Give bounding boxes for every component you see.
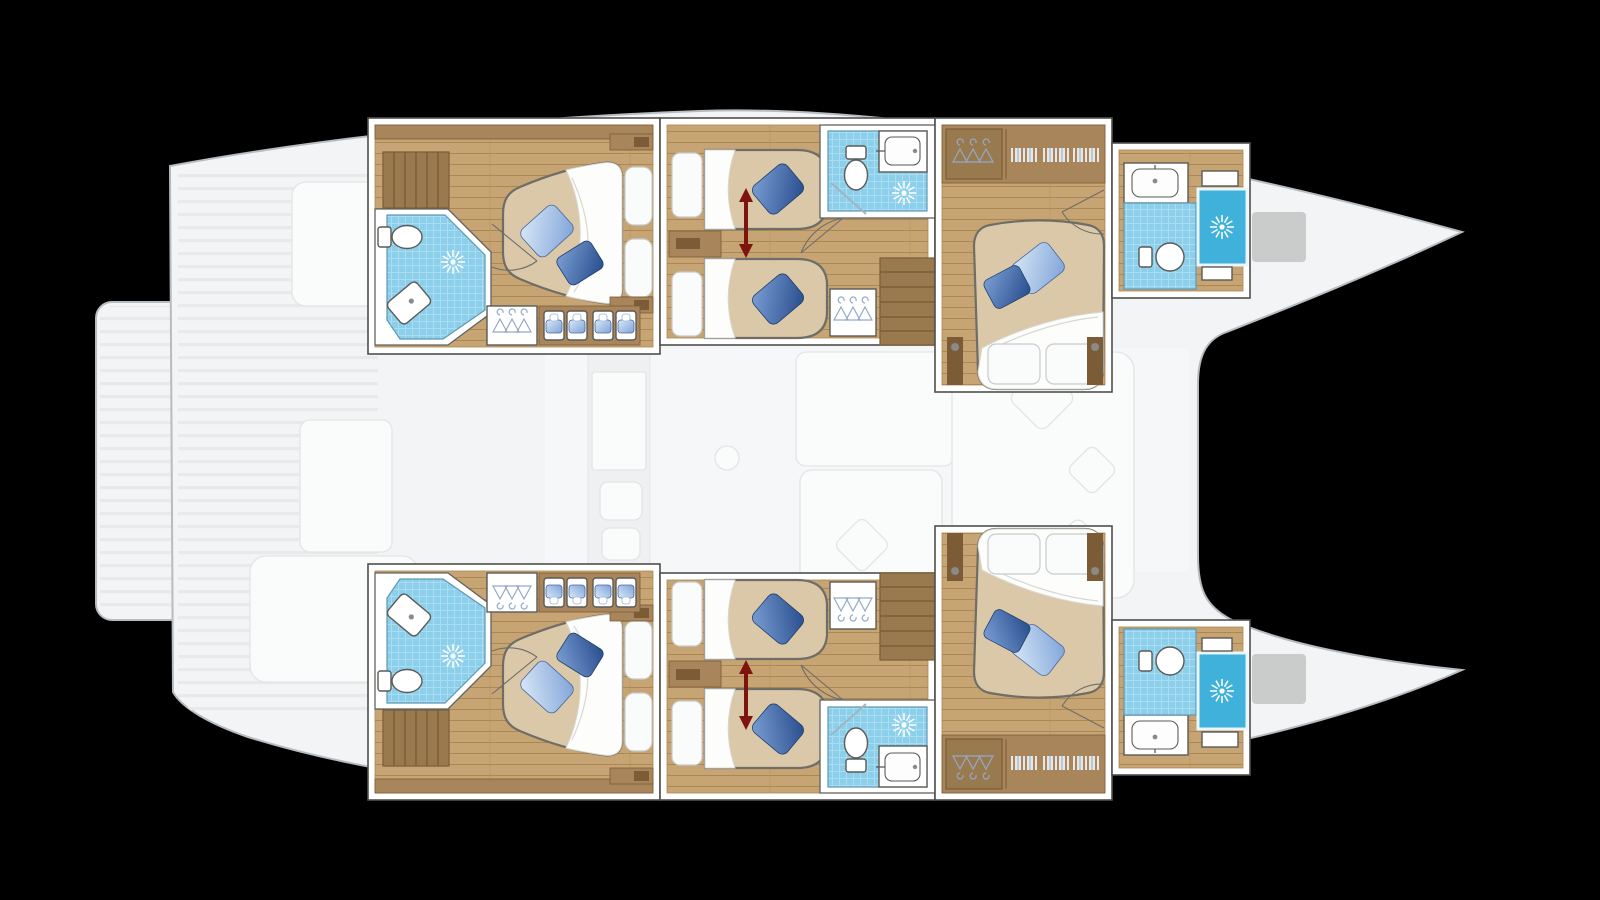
double-bed [974,221,1104,390]
toilet-icon [378,226,422,249]
floor-plan-canvas [0,0,1600,900]
shelf [1202,171,1238,186]
saloon-table [796,352,954,466]
wardrobe [830,289,876,336]
foredeck-hatch [1252,212,1306,262]
toilet-icon [845,146,868,190]
steps-icon [383,152,449,208]
cockpit-table [300,420,392,552]
single-bed-outboard [672,150,827,229]
foredeck-hatch [1252,654,1306,704]
clothes-stack-icon [1044,148,1068,162]
toilet-icon [1139,243,1184,271]
aft-cabin [368,118,660,354]
clothes-stack-icon [1074,148,1098,162]
saloon-post [715,446,739,470]
floor-plan-page [0,0,1600,900]
galley-sink [600,482,642,520]
cockpit-bench [292,182,380,306]
mid-bathroom [820,125,935,218]
wardrobe [487,306,537,345]
storage-cubbies [539,306,640,345]
mid-cabin [660,118,935,345]
galley-stove [602,528,640,560]
wardrobe [946,129,1002,179]
shelf [1202,267,1232,280]
fwd-bathroom [1112,143,1250,298]
clothes-stack-icon [1012,148,1036,162]
fwd-cabin [935,118,1112,392]
stairs-icon [880,258,935,345]
